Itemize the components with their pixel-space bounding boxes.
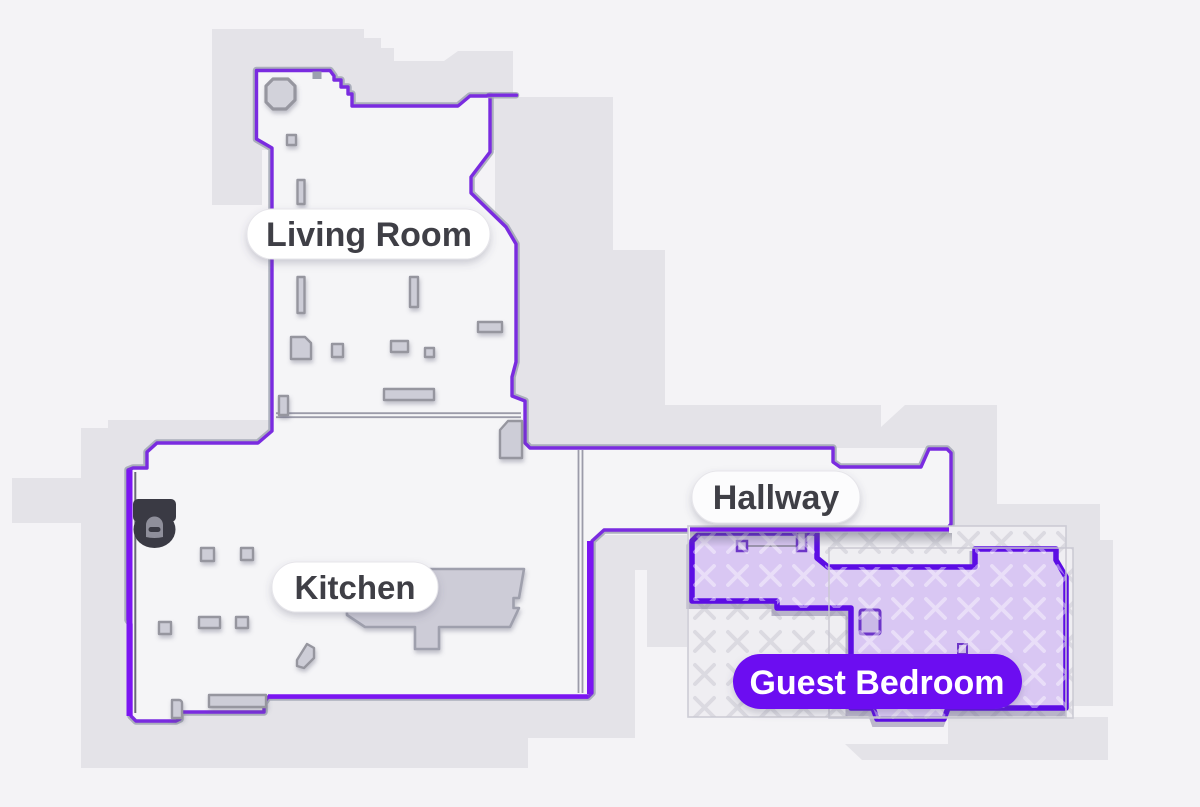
svg-text:Living Room: Living Room xyxy=(266,216,472,254)
svg-text:Guest Bedroom: Guest Bedroom xyxy=(749,664,1004,702)
svg-text:Kitchen: Kitchen xyxy=(294,569,415,606)
svg-text:Hallway: Hallway xyxy=(713,479,840,517)
